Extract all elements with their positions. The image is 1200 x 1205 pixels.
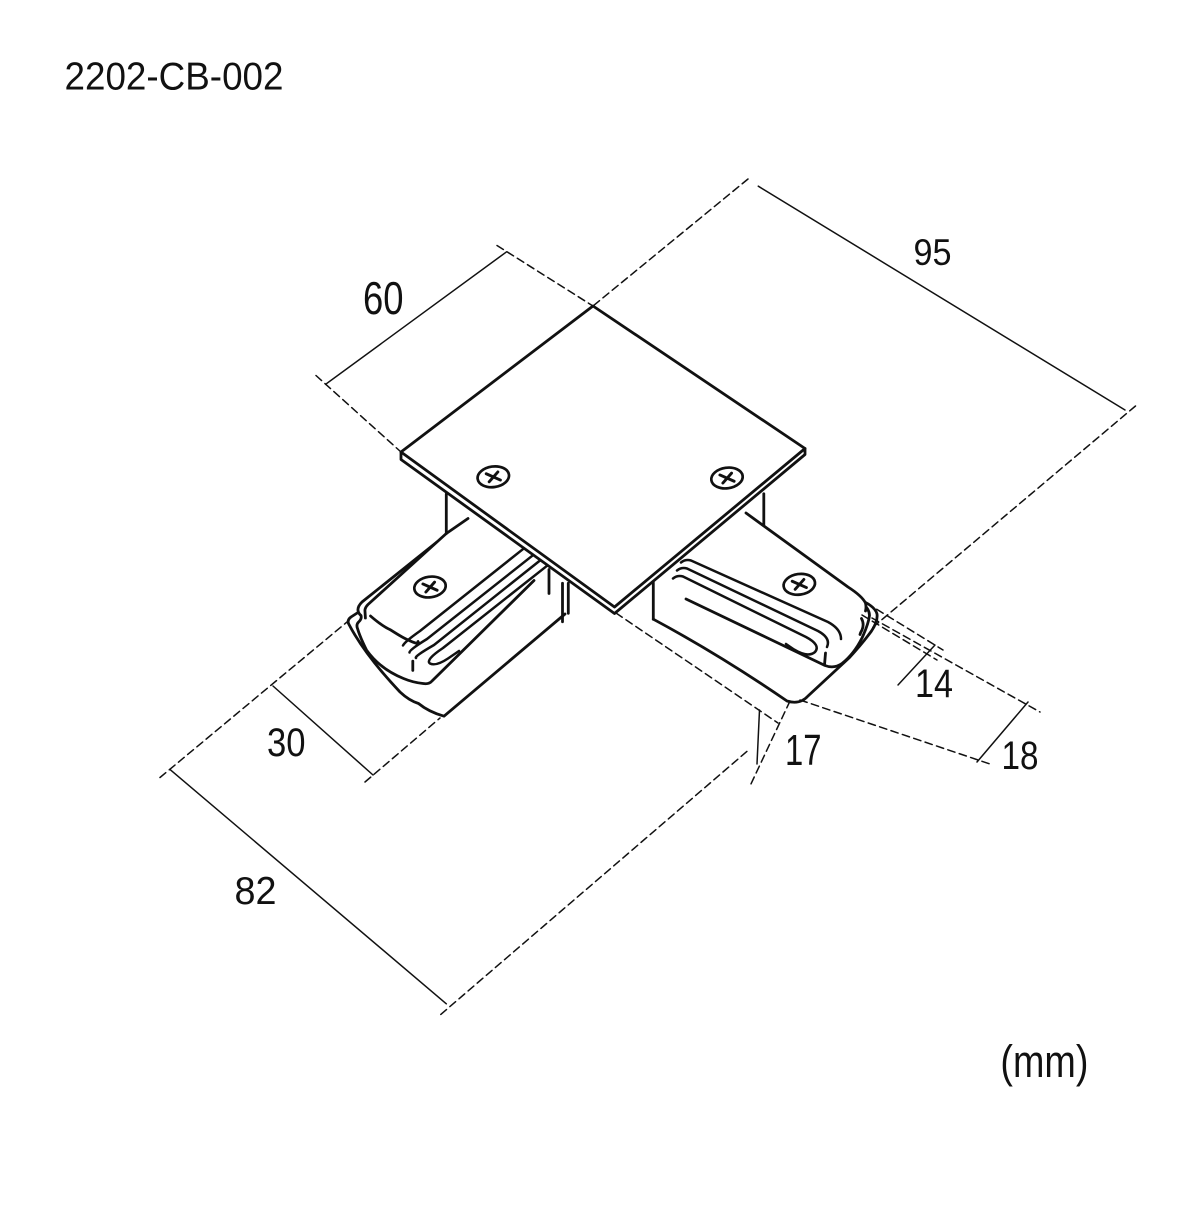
svg-text:18: 18: [1002, 734, 1039, 778]
svg-text:95: 95: [914, 232, 952, 273]
svg-text:60: 60: [363, 272, 404, 324]
svg-text:(mm): (mm): [1000, 1036, 1088, 1087]
svg-text:82: 82: [235, 870, 277, 913]
svg-text:14: 14: [915, 662, 953, 706]
svg-text:30: 30: [267, 721, 306, 765]
svg-text:17: 17: [785, 726, 822, 775]
svg-text:2202-CB-002: 2202-CB-002: [65, 56, 284, 99]
